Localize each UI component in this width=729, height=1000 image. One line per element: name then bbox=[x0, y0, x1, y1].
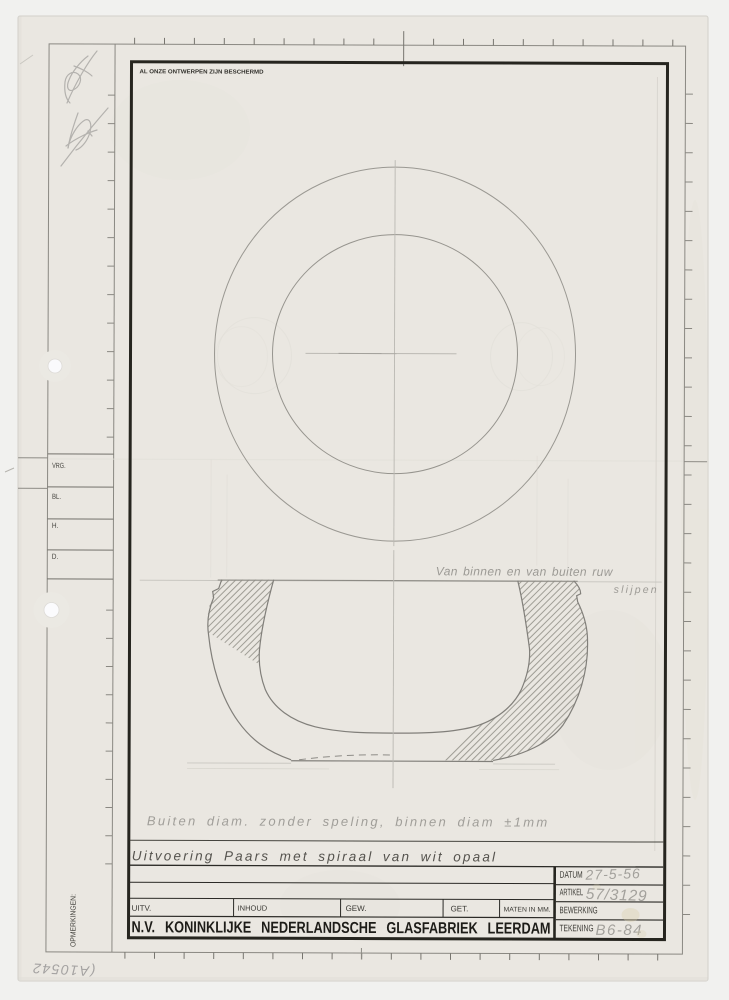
svg-text:Uitvoering Paars met spiraal v: Uitvoering Paars met spiraal van wit opa… bbox=[132, 848, 498, 864]
svg-text:slijpen: slijpen bbox=[614, 584, 659, 596]
svg-text:Van binnen en van buiten ruw: Van binnen en van buiten ruw bbox=[436, 564, 614, 579]
svg-text:AL ONZE ONTWERPEN ZIJN BESCHER: AL ONZE ONTWERPEN ZIJN BESCHERMD bbox=[139, 68, 263, 75]
svg-text:DATUM: DATUM bbox=[560, 870, 583, 881]
svg-text:UITV.: UITV. bbox=[132, 904, 152, 913]
svg-text:BL.: BL. bbox=[52, 492, 61, 501]
svg-text:ARTIKEL: ARTIKEL bbox=[560, 887, 584, 898]
svg-text:D.: D. bbox=[52, 552, 59, 561]
svg-text:27-5-56: 27-5-56 bbox=[584, 865, 641, 883]
svg-text:GEW.: GEW. bbox=[346, 904, 367, 913]
svg-text:BEWERKING: BEWERKING bbox=[560, 905, 598, 916]
svg-text:VRG.: VRG. bbox=[52, 461, 66, 470]
svg-text:INHOUD: INHOUD bbox=[238, 904, 268, 913]
svg-text:(A10542: (A10542 bbox=[31, 960, 95, 979]
svg-text:Buiten diam. zonder speling, b: Buiten diam. zonder speling, binnen diam… bbox=[147, 813, 550, 829]
svg-text:B6-84: B6-84 bbox=[595, 922, 643, 939]
svg-text:TEKENING: TEKENING bbox=[559, 923, 593, 934]
svg-text:OPMERKINGEN:: OPMERKINGEN: bbox=[68, 894, 77, 947]
svg-text:MATEN IN MM.: MATEN IN MM. bbox=[504, 907, 551, 914]
svg-text:GET.: GET. bbox=[451, 904, 469, 913]
svg-text:N.V. KONINKLIJKE NEDERLANDSCHE: N.V. KONINKLIJKE NEDERLANDSCHE GLASFABRI… bbox=[131, 919, 550, 937]
svg-text:H.: H. bbox=[52, 521, 59, 530]
